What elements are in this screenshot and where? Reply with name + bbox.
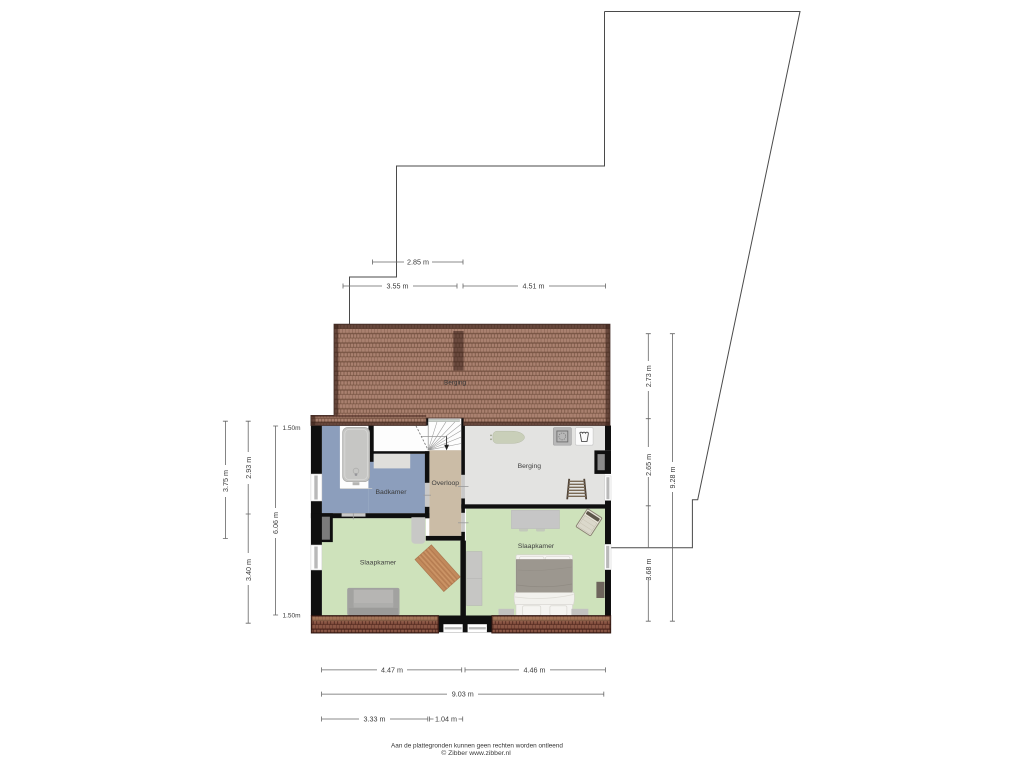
svg-text:3.68 m: 3.68 m bbox=[644, 559, 653, 581]
svg-text:9.03 m: 9.03 m bbox=[452, 690, 474, 699]
svg-text:9.28 m: 9.28 m bbox=[668, 467, 677, 489]
svg-text:2.93 m: 2.93 m bbox=[244, 457, 253, 479]
svg-text:3.40 m: 3.40 m bbox=[244, 559, 253, 581]
svg-text:Badkamer: Badkamer bbox=[376, 489, 408, 496]
svg-text:Overloop: Overloop bbox=[432, 480, 460, 487]
svg-text:3.75 m: 3.75 m bbox=[221, 470, 230, 492]
svg-text:Berging: Berging bbox=[444, 380, 466, 387]
svg-text:6.06 m: 6.06 m bbox=[271, 512, 280, 534]
svg-text:3.55 m: 3.55 m bbox=[387, 282, 409, 291]
svg-text:1.50m: 1.50m bbox=[283, 612, 301, 619]
svg-text:1.50m: 1.50m bbox=[283, 425, 301, 432]
svg-text:Berging: Berging bbox=[518, 463, 542, 470]
svg-text:4.47 m: 4.47 m bbox=[381, 666, 403, 675]
svg-text:2.85 m: 2.85 m bbox=[407, 258, 429, 267]
svg-text:Slaapkamer: Slaapkamer bbox=[518, 543, 555, 550]
svg-text:Aan de plattegronden kunnen ge: Aan de plattegronden kunnen geen rechten… bbox=[391, 743, 563, 750]
svg-text:© Zibber www.zibber.nl: © Zibber www.zibber.nl bbox=[441, 749, 511, 757]
svg-text:2.73 m: 2.73 m bbox=[644, 365, 653, 387]
svg-text:4.46 m: 4.46 m bbox=[524, 666, 546, 675]
svg-text:2.65 m: 2.65 m bbox=[644, 454, 653, 476]
svg-text:4.51 m: 4.51 m bbox=[523, 282, 545, 291]
svg-text:Slaapkamer: Slaapkamer bbox=[360, 559, 397, 566]
svg-text:3.33 m: 3.33 m bbox=[364, 715, 386, 724]
svg-text:1.04 m: 1.04 m bbox=[435, 715, 457, 724]
